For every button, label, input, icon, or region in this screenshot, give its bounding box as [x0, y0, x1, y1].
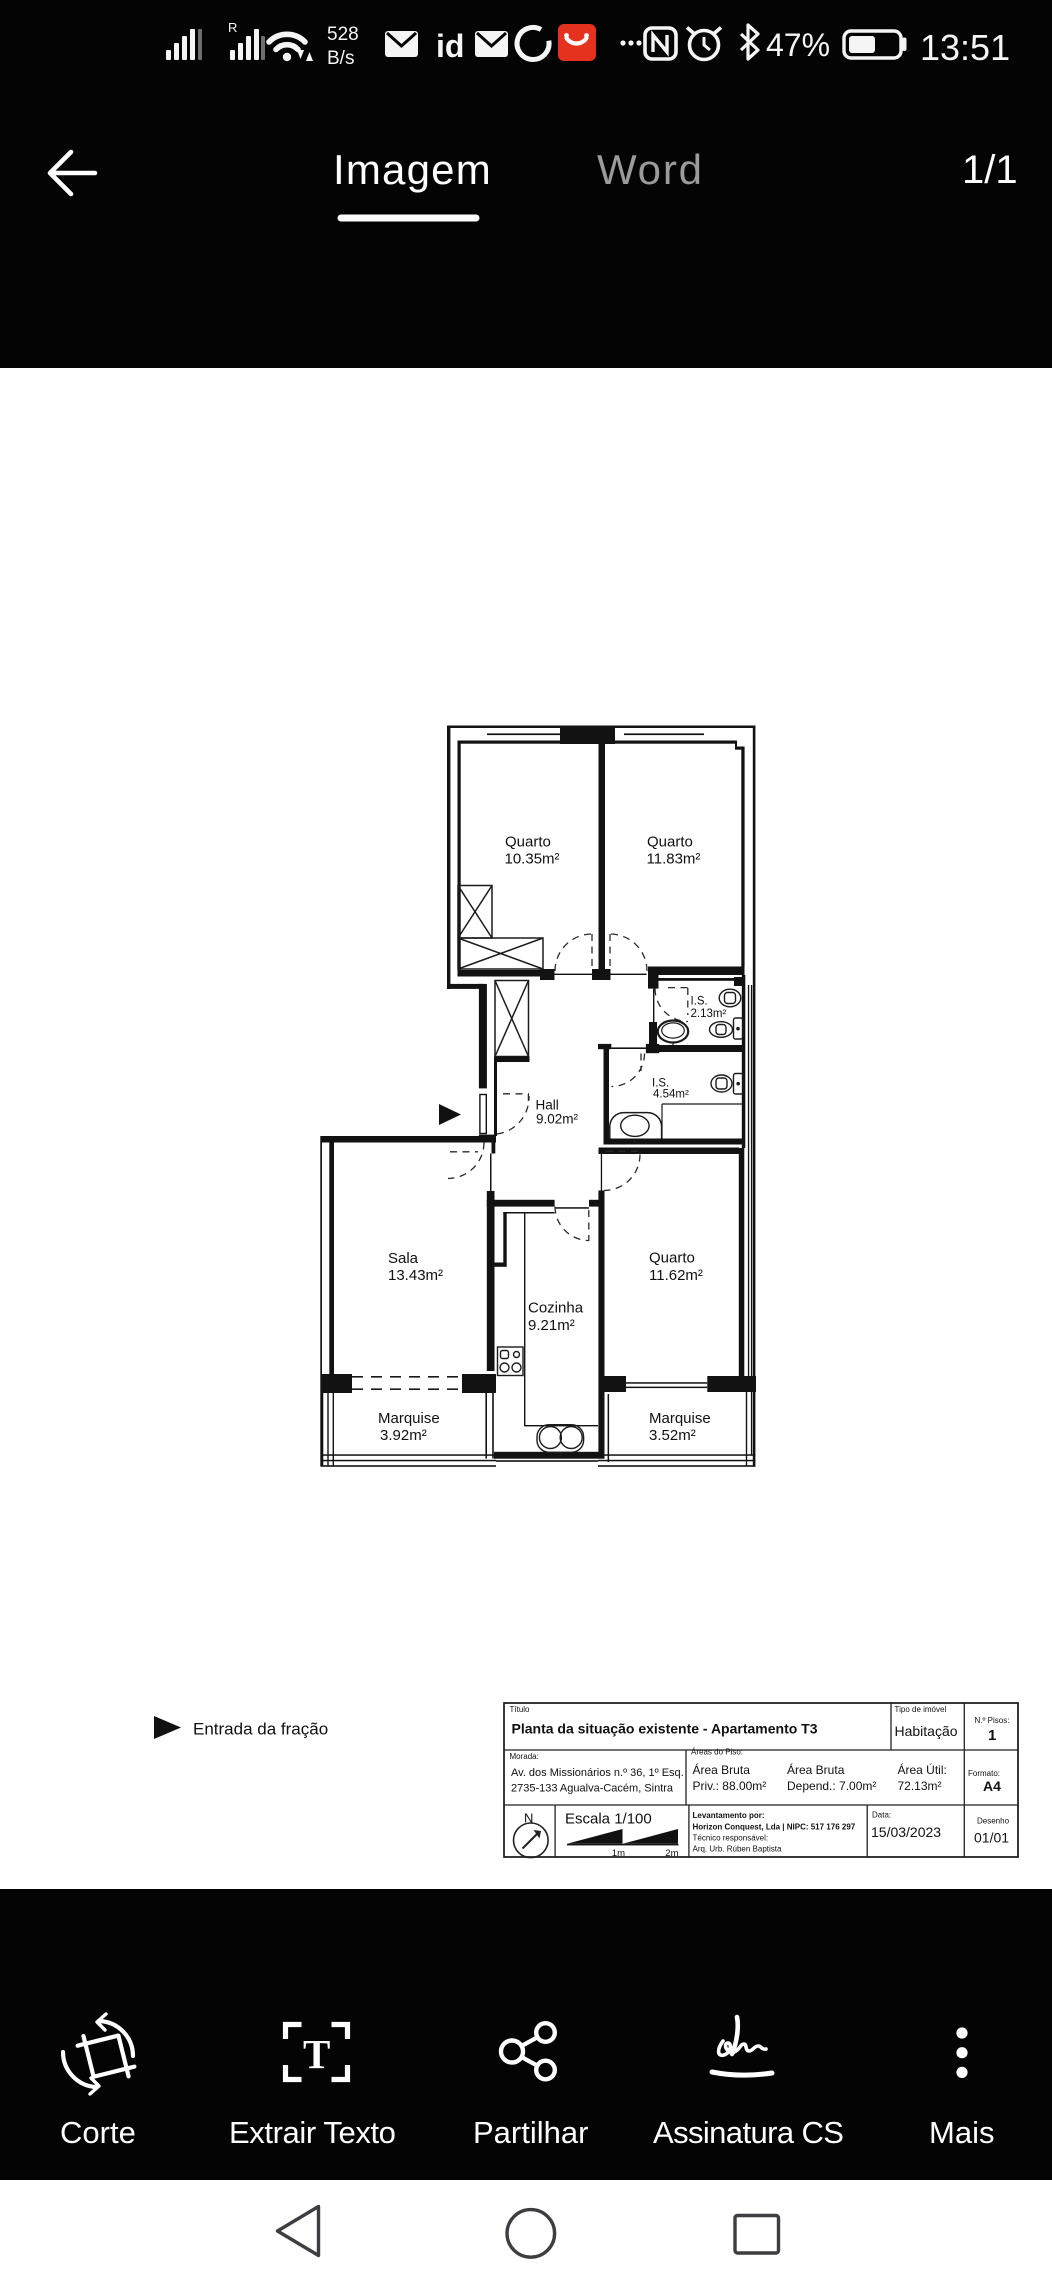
svg-text:Desenho: Desenho [977, 1817, 1010, 1826]
svg-text:Priv.: 88.00m²: Priv.: 88.00m² [693, 1779, 767, 1793]
svg-text:2m: 2m [665, 1848, 678, 1859]
svg-text:N.º Pisos:: N.º Pisos: [975, 1716, 1010, 1725]
svg-text:10.35m²: 10.35m² [505, 851, 560, 868]
svg-text:Hall: Hall [536, 1098, 559, 1113]
svg-text:1/1: 1/1 [962, 148, 1018, 192]
svg-text:Levantamento por:: Levantamento por: [693, 1811, 765, 1820]
svg-text:Habitação: Habitação [895, 1723, 958, 1739]
svg-text:11.62m²: 11.62m² [649, 1267, 703, 1284]
svg-text:Quarto: Quarto [647, 834, 693, 851]
svg-text:Sala: Sala [388, 1250, 419, 1267]
svg-text:01/01: 01/01 [974, 1830, 1009, 1846]
svg-text:Cozinha: Cozinha [528, 1300, 584, 1317]
svg-text:Escala 1/100: Escala 1/100 [565, 1811, 652, 1828]
svg-text:13:51: 13:51 [920, 27, 1010, 68]
svg-text:R: R [228, 20, 237, 35]
svg-text:Áreas do Piso:: Áreas do Piso: [691, 1748, 743, 1757]
svg-text:Depend.: 7.00m²: Depend.: 7.00m² [787, 1779, 876, 1793]
svg-text:2735-133 Agualva-Cacém, Sintra: 2735-133 Agualva-Cacém, Sintra [511, 1783, 674, 1795]
svg-text:Área Bruta: Área Bruta [693, 1762, 751, 1777]
svg-text:47%: 47% [766, 27, 830, 63]
svg-text:Imagem: Imagem [333, 146, 492, 193]
svg-text:9.21m²: 9.21m² [528, 1317, 575, 1334]
svg-text:Extrair Texto: Extrair Texto [229, 2115, 396, 2150]
svg-text:Marquise: Marquise [649, 1410, 711, 1427]
svg-text:1m: 1m [612, 1848, 625, 1859]
svg-text:id: id [436, 28, 464, 64]
svg-text:2.13m²: 2.13m² [691, 1008, 727, 1020]
svg-text:13.43m²: 13.43m² [388, 1267, 443, 1284]
svg-text:4.54m²: 4.54m² [653, 1089, 689, 1101]
svg-text:Entrada da fração: Entrada da fração [193, 1720, 328, 1739]
svg-text:1: 1 [988, 1727, 996, 1744]
svg-text:Mais: Mais [929, 2115, 994, 2150]
svg-text:Técnico responsável:: Técnico responsável: [693, 1834, 769, 1843]
svg-text:Quarto: Quarto [649, 1250, 695, 1267]
svg-text:Arq. Urb. Rúben Baptista: Arq. Urb. Rúben Baptista [693, 1845, 782, 1854]
svg-text:N: N [524, 1811, 533, 1826]
svg-text:Tipo de imóvel: Tipo de imóvel [895, 1705, 947, 1714]
svg-text:Área Útil:: Área Útil: [898, 1762, 947, 1777]
svg-text:15/03/2023: 15/03/2023 [871, 1824, 941, 1840]
svg-text:Av. dos Missionários n.º 36, 1: Av. dos Missionários n.º 36, 1º Esq. [511, 1767, 684, 1779]
svg-text:Assinatura CS: Assinatura CS [653, 2115, 843, 2150]
svg-text:T: T [303, 2031, 330, 2077]
svg-text:Marquise: Marquise [378, 1410, 440, 1427]
svg-text:528: 528 [327, 24, 359, 45]
svg-text:Área Bruta: Área Bruta [787, 1762, 845, 1777]
svg-text:A4: A4 [983, 1778, 1001, 1794]
svg-text:I.S.: I.S. [691, 996, 708, 1008]
svg-text:11.83m²: 11.83m² [647, 851, 701, 868]
svg-text:Horizon Conquest, Lda | NIPC:: Horizon Conquest, Lda | NIPC: 517 176 29… [693, 1823, 856, 1832]
svg-text:Partilhar: Partilhar [473, 2115, 588, 2150]
svg-text:9.02m²: 9.02m² [536, 1112, 579, 1127]
svg-text:Morada:: Morada: [510, 1752, 539, 1761]
svg-text:3.92m²: 3.92m² [380, 1427, 427, 1444]
svg-text:Título: Título [510, 1705, 531, 1714]
svg-text:Word: Word [597, 146, 704, 193]
svg-text:Planta da situação existente -: Planta da situação existente - Apartamen… [512, 1721, 818, 1737]
svg-text:72.13m²: 72.13m² [898, 1779, 942, 1793]
svg-text:B/s: B/s [327, 48, 354, 69]
svg-text:Data:: Data: [872, 1811, 891, 1820]
svg-text:3.52m²: 3.52m² [649, 1427, 696, 1444]
svg-text:Formato:: Formato: [968, 1769, 1000, 1778]
svg-text:Corte: Corte [60, 2115, 136, 2150]
svg-text:Quarto: Quarto [505, 834, 551, 851]
